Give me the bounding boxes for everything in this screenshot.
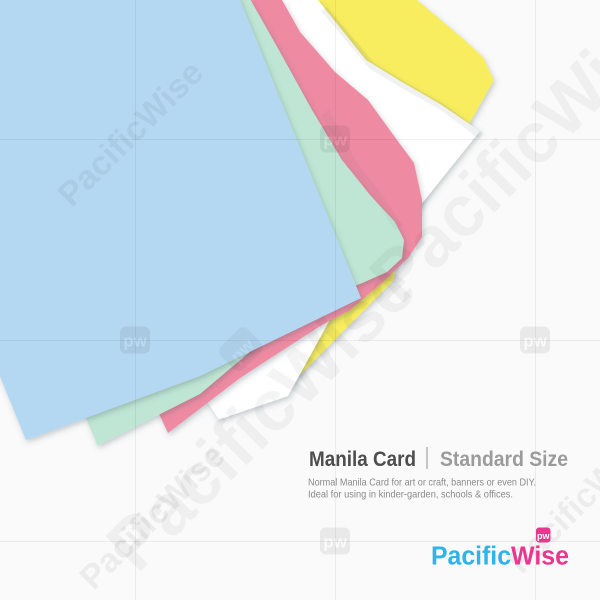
svg-text:pw: pw xyxy=(123,332,147,351)
svg-text:Ideal for using in kinder-gard: Ideal for using in kinder-garden, school… xyxy=(308,489,513,501)
svg-text:Normal Manila Card for art or: Normal Manila Card for art or craft, ban… xyxy=(308,477,536,489)
svg-text:Manila Card: Manila Card xyxy=(309,448,416,471)
svg-text:pw: pw xyxy=(537,531,550,541)
svg-text:Pacific: Pacific xyxy=(431,543,511,571)
svg-text:pw: pw xyxy=(523,332,547,351)
svg-text:pw: pw xyxy=(323,131,347,150)
svg-text:pw: pw xyxy=(323,533,347,552)
svg-text:Wise: Wise xyxy=(511,543,569,571)
svg-text:Standard Size: Standard Size xyxy=(440,448,568,471)
